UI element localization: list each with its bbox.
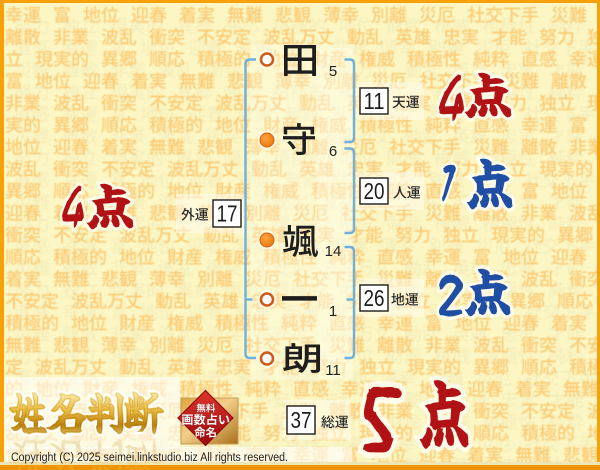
- svg-text:17: 17: [217, 201, 238, 227]
- svg-text:20: 20: [364, 178, 385, 204]
- svg-text:26: 26: [364, 285, 385, 311]
- svg-text:14: 14: [325, 243, 342, 260]
- svg-text:11: 11: [364, 88, 385, 114]
- svg-text:11: 11: [325, 362, 341, 379]
- svg-text:6: 6: [329, 143, 337, 160]
- svg-text:37: 37: [291, 407, 312, 433]
- svg-text:Copyright (C) 2025 seimei.link: Copyright (C) 2025 seimei.linkstudio.biz…: [11, 452, 288, 464]
- svg-text:5: 5: [329, 63, 337, 80]
- svg-text:1: 1: [329, 303, 337, 320]
